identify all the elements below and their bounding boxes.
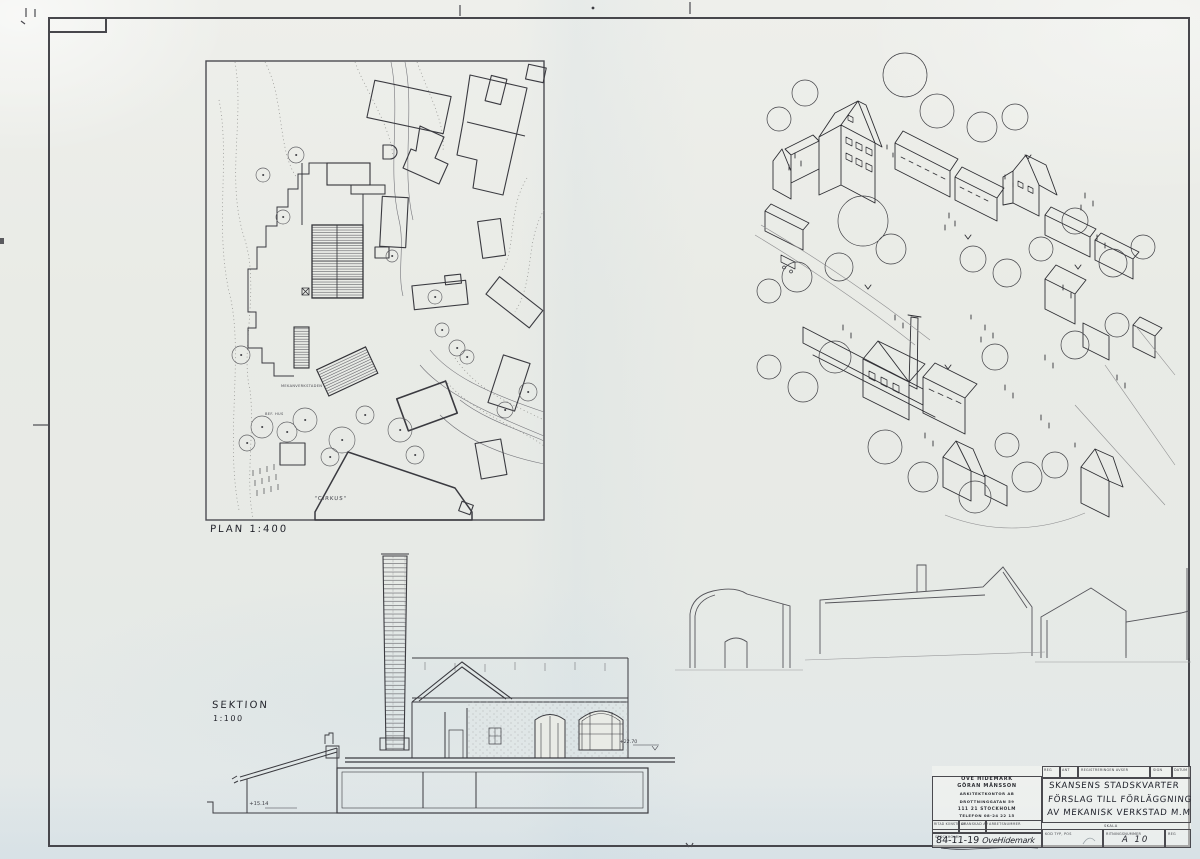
section-chimney xyxy=(380,554,409,750)
signature-flourish xyxy=(940,845,1040,851)
rev-avser-label: REGISTRERINGEN AVSER xyxy=(1081,768,1128,772)
section-arched-window xyxy=(579,711,623,750)
site-plan: MEKANVERKSTADEN BEF. HUS "CIRKUS" xyxy=(205,60,545,522)
title-block: OVE HIDEMARK GÖRAN MÅNSSON ARKITEKTKONTO… xyxy=(932,766,1191,848)
project-title-line: SKANSENS STADSKVARTER xyxy=(1048,780,1191,794)
axon-bottom-houses xyxy=(943,441,1007,506)
skala-label: SKALA xyxy=(1104,824,1118,828)
firm-address: OVE HIDEMARK GÖRAN MÅNSSON ARKITEKTKONTO… xyxy=(932,776,1042,819)
firm-line: TELEFON 08-24 22 15 xyxy=(932,812,1042,819)
plan-tree-dots xyxy=(241,155,528,457)
level-high-label: +22.70 xyxy=(619,739,637,745)
axon-car xyxy=(781,255,795,273)
elevation-ground-lines xyxy=(675,652,1191,670)
reg-small-label: REG xyxy=(1168,832,1176,836)
drawing-number: A 10 xyxy=(1122,835,1149,845)
ritad-cell: RITAD KONSTR AV xyxy=(932,820,959,833)
registration-dot xyxy=(592,7,595,10)
axon-bottom-right-house xyxy=(1081,449,1123,517)
fold-mark-top-left xyxy=(21,8,35,24)
axon-workshop xyxy=(863,315,977,434)
project-title-line: FÖRSLAG TILL FÖRLÄGGNING xyxy=(1048,794,1191,808)
fold-mark-top-center xyxy=(460,2,690,16)
firm-line: 111 21 STOCKHOLM xyxy=(932,805,1042,812)
section-caption: SEKTION xyxy=(212,700,269,711)
rev-avser-cell: REGISTRERINGEN AVSER xyxy=(1078,766,1150,778)
kod-cell: KOD TYP, POS xyxy=(1042,829,1103,848)
plan-workshop-complex xyxy=(248,163,385,496)
pencil-mark xyxy=(1081,834,1097,846)
elevation-round-building xyxy=(690,589,790,668)
plan-cirkus-label: "CIRKUS" xyxy=(314,496,347,502)
axon-left-wing xyxy=(773,135,819,199)
elevation-long-building xyxy=(820,565,1032,656)
project-title-line: AV MEKANISK VERKSTAD M.M xyxy=(1047,807,1190,821)
arbetsnummer-cell: ARBETSNUMMER xyxy=(986,820,1042,833)
elevation-right-fragment xyxy=(1126,568,1189,660)
arbetsnummer-label: ARBETSNUMMER xyxy=(989,822,1021,826)
granskad-cell: GRANSKAD AV xyxy=(959,820,986,833)
plan-frame xyxy=(206,61,544,520)
project-title: SKANSENS STADSKVARTER FÖRSLAG TILL FÖRLÄ… xyxy=(1047,780,1192,821)
rev-datum-label: DATUM xyxy=(1174,768,1187,772)
section-left-slope xyxy=(207,733,339,813)
axon-trees xyxy=(757,53,1155,513)
plan-l-building xyxy=(403,126,448,184)
plan-stairs-hatch xyxy=(253,464,278,496)
plan-large-building xyxy=(457,75,527,195)
axon-gable-house xyxy=(1003,155,1057,216)
scanned-architectural-drawing: { "drawing": { "plan_label": "PLAN 1:400… xyxy=(0,0,1200,859)
section-scale-caption: 1:100 xyxy=(213,714,244,723)
level-low-label: +15.14 xyxy=(249,801,269,807)
firm-line: DROTTNINGGATAN 59 xyxy=(932,798,1042,805)
plan-cirkus-building xyxy=(315,452,472,520)
axon-row-buildings xyxy=(895,131,1004,221)
plan-existing-note: BEF. HUS xyxy=(265,412,284,416)
rev-ant-label: ANT xyxy=(1062,768,1070,772)
section-elevation-fragments xyxy=(675,565,1191,670)
firm-line: GÖRAN MÅNSSON xyxy=(932,783,1042,790)
section-gable xyxy=(412,662,512,702)
axonometric-sketch xyxy=(745,25,1175,545)
rev-sign-cell: SIGN xyxy=(1150,766,1172,778)
section-ground-line xyxy=(345,758,675,762)
plan-caption: PLAN 1:400 xyxy=(210,524,289,535)
rev-datum-cell: DATUM xyxy=(1172,766,1191,778)
axon-low-rows xyxy=(1045,207,1139,279)
firm-line: ARKITEKTKONTOR AB xyxy=(932,790,1042,797)
signature: OveHidemark xyxy=(982,836,1035,845)
rev-reg-label: REG xyxy=(1044,768,1052,772)
rev-ant-cell: ANT xyxy=(1060,766,1078,778)
plan-trees xyxy=(232,147,537,466)
plan-workshop-note: MEKANVERKSTADEN xyxy=(281,384,322,388)
kod-label: KOD TYP, POS xyxy=(1045,832,1072,836)
rev-reg-cell: REG xyxy=(1042,766,1060,778)
reg-cell: REG xyxy=(1165,829,1191,848)
axon-right-cluster xyxy=(1045,265,1162,360)
edge-mark-left xyxy=(0,238,4,244)
granskad-label: GRANSKAD AV xyxy=(961,822,988,826)
rev-sign-label: SIGN xyxy=(1153,768,1162,772)
section-basement xyxy=(337,768,648,813)
elevation-gable-fragment xyxy=(1041,588,1126,658)
